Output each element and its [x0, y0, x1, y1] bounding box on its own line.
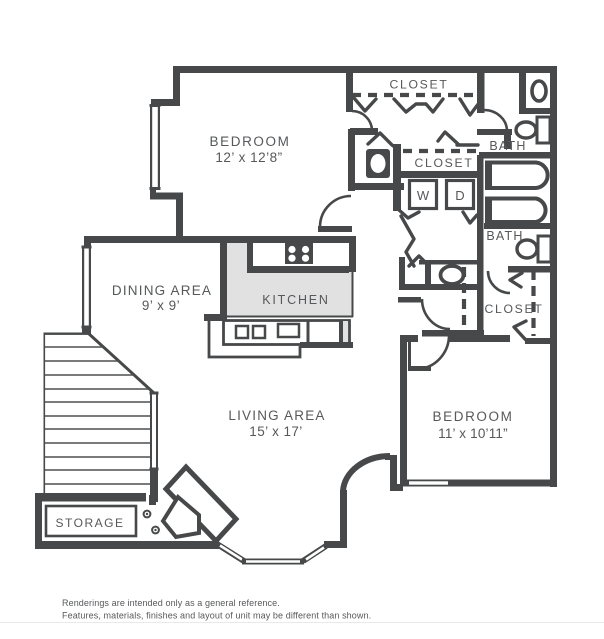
svg-text:CLOSET: CLOSET — [415, 156, 474, 170]
svg-text:W: W — [417, 188, 430, 203]
svg-text:DINING AREA: DINING AREA — [112, 283, 212, 298]
svg-text:CLOSET: CLOSET — [485, 302, 544, 316]
svg-text:BEDROOM: BEDROOM — [210, 134, 291, 149]
svg-text:BEDROOM: BEDROOM — [433, 409, 514, 424]
svg-text:KITCHEN: KITCHEN — [262, 293, 329, 307]
svg-text:11’ x 10’11”: 11’ x 10’11” — [438, 426, 508, 441]
svg-text:15’ x 17’: 15’ x 17’ — [249, 424, 302, 439]
svg-text:D: D — [455, 188, 464, 203]
svg-text:9’ x 9’: 9’ x 9’ — [142, 298, 180, 313]
svg-text:BATH: BATH — [489, 139, 526, 153]
svg-text:BATH: BATH — [486, 229, 523, 243]
svg-text:CLOSET: CLOSET — [390, 78, 449, 92]
svg-text:12’ x 12’8”: 12’ x 12’8” — [215, 150, 282, 165]
svg-text:Features, materials, finishes: Features, materials, finishes and layout… — [62, 611, 371, 621]
svg-text:Renderings are intended only a: Renderings are intended only as a genera… — [62, 598, 280, 608]
svg-text:STORAGE: STORAGE — [56, 516, 125, 530]
svg-text:LIVING AREA: LIVING AREA — [228, 408, 325, 423]
